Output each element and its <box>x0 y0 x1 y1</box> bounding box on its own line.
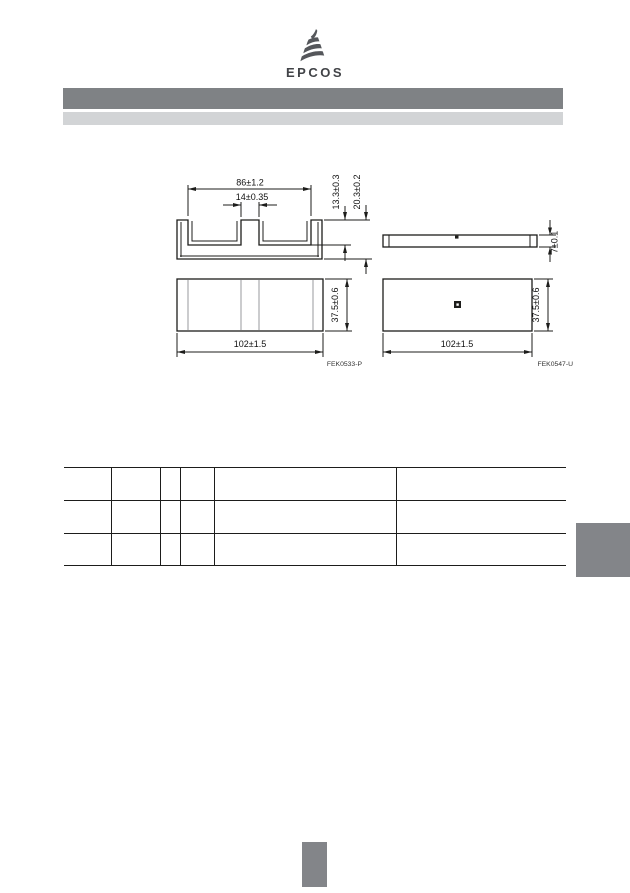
core-profile-outline <box>177 220 322 259</box>
dim-plate-thickness: 7±0.1 <box>550 231 560 253</box>
plate-drawing: 7±0.1 37.5±0.6 102±1.5 FEK0547-U <box>383 220 573 368</box>
table-cell <box>64 534 112 566</box>
table-cell <box>397 501 566 534</box>
table-cell <box>64 501 112 534</box>
dim-core-length: 102±1.5 <box>234 339 266 349</box>
dim-plate-length: 102±1.5 <box>441 339 473 349</box>
table-cell <box>215 534 397 566</box>
dim-core-height: 20.3±0.2 <box>352 175 362 210</box>
plate-drawing-number: FEK0547-U <box>537 361 573 368</box>
core-plan-outline <box>177 279 323 331</box>
dim-core-center-leg: 14±0.35 <box>236 192 268 202</box>
table-cell <box>215 501 397 534</box>
table-cell <box>64 468 112 501</box>
plate-profile-outline <box>383 235 537 247</box>
table-cell <box>215 468 397 501</box>
table-cell <box>397 534 566 566</box>
table-cell <box>161 468 181 501</box>
table-cell <box>161 534 181 566</box>
table-cell <box>112 501 161 534</box>
chapter-side-tab <box>576 523 630 577</box>
table-cell <box>181 501 215 534</box>
dim-core-depth: 37.5±0.6 <box>330 288 340 323</box>
table-cell <box>112 468 161 501</box>
table-cell <box>112 534 161 566</box>
table-cell <box>161 501 181 534</box>
technical-drawings: 86±1.2 14±0.35 13.3±0.3 20.3±0.2 37.5± <box>0 0 630 893</box>
footer-page-block <box>302 842 327 887</box>
table-cell <box>397 468 566 501</box>
dim-core-top-width: 86±1.2 <box>236 178 263 188</box>
core-drawing: 86±1.2 14±0.35 13.3±0.3 20.3±0.2 37.5± <box>177 175 372 368</box>
dim-core-window-depth: 13.3±0.3 <box>331 175 341 210</box>
datasheet-page: EPCOS 86±1.2 14±0.35 <box>0 0 630 893</box>
table-cell <box>181 534 215 566</box>
table-cell <box>181 468 215 501</box>
dim-plate-depth: 37.5±0.6 <box>531 288 541 323</box>
spec-table <box>64 467 566 566</box>
core-drawing-number: FEK0533-P <box>327 361 363 368</box>
plate-center-mark <box>455 236 459 239</box>
